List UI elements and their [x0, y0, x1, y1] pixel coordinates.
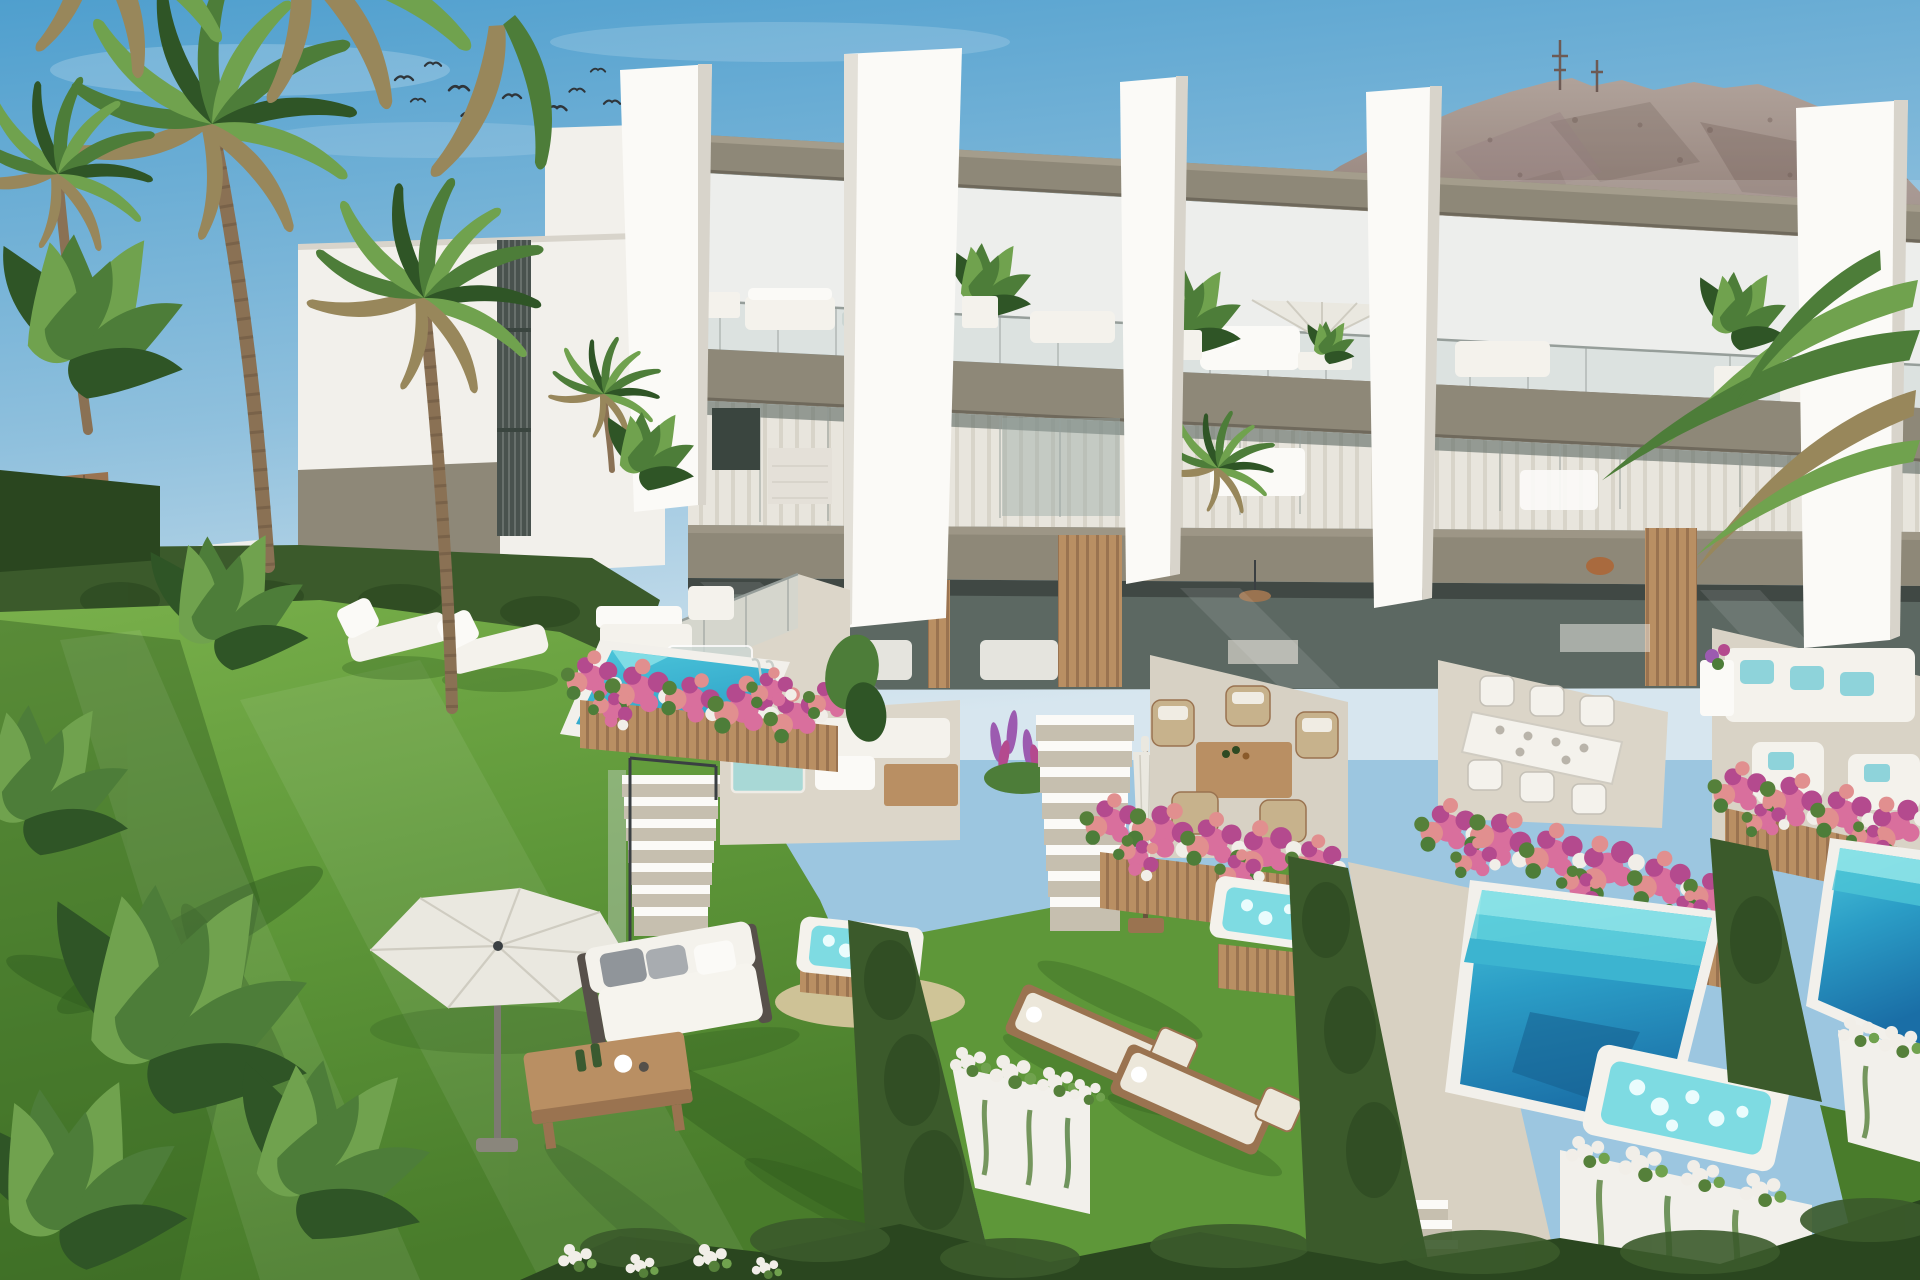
architectural-render	[0, 0, 1920, 1280]
louvered-window-strip	[497, 240, 531, 536]
render-canvas	[0, 0, 1920, 1280]
